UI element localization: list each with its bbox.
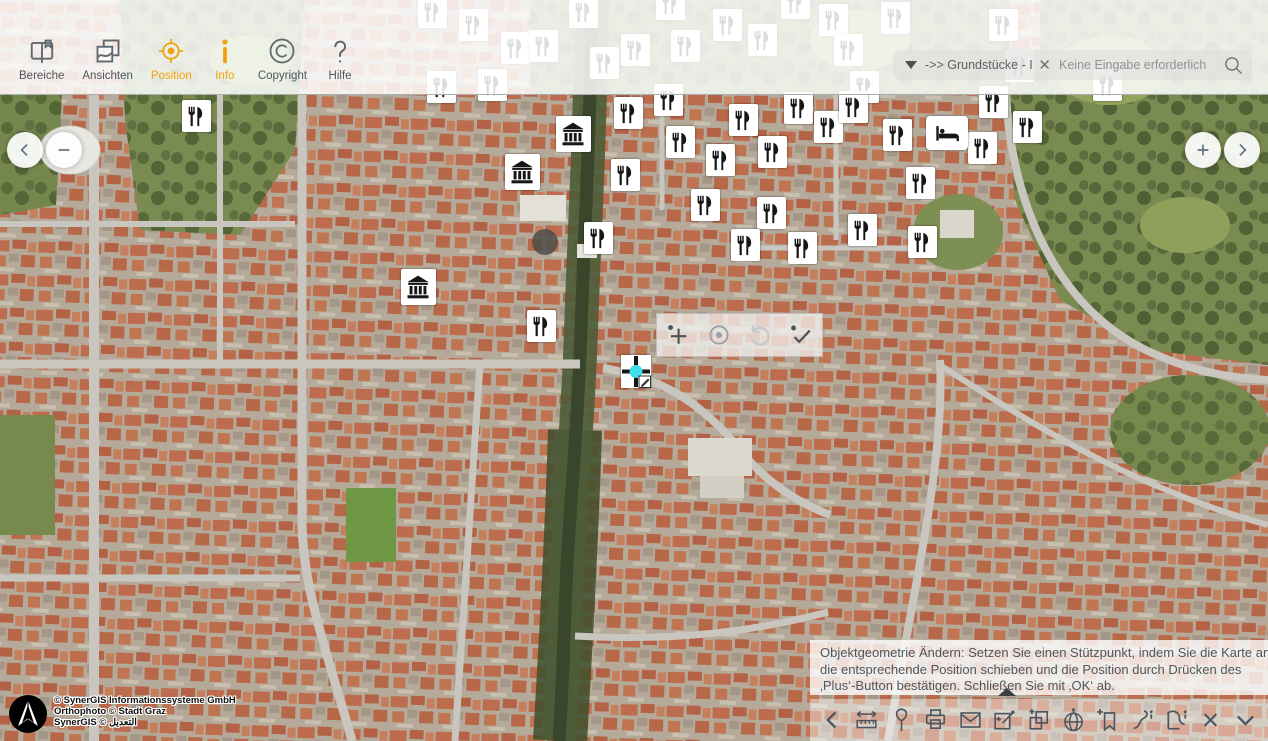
zoom-out-button[interactable]: [46, 132, 82, 168]
restaurant-marker[interactable]: [729, 104, 758, 136]
restaurant-marker[interactable]: [614, 97, 643, 129]
help-icon: [325, 36, 355, 66]
hint-panel: Objektgeometrie Ändern: Setzen Sie einen…: [810, 640, 1268, 695]
search-input[interactable]: [1057, 57, 1222, 73]
copyright-line: SynerGIS © التعديل: [54, 717, 236, 728]
search-category-value[interactable]: ->> Grundstücke - In: [925, 58, 1032, 72]
close-button[interactable]: [1194, 702, 1227, 738]
menu-label: Bereiche: [19, 70, 64, 82]
restaurant-marker[interactable]: [788, 232, 817, 264]
museum-marker[interactable]: [505, 154, 540, 190]
edit-geometry-button[interactable]: [988, 702, 1021, 738]
menu-label: Ansichten: [82, 70, 133, 82]
copy-layers-icon: [1024, 706, 1053, 734]
bookmark-add-icon: [1093, 706, 1122, 734]
pin-button[interactable]: [885, 702, 918, 738]
bookmark-add-button[interactable]: [1091, 702, 1124, 738]
menu-item-ansichten[interactable]: Ansichten: [82, 36, 133, 82]
hint-text: Objektgeometrie Ändern: Setzen Sie einen…: [820, 645, 1258, 662]
undo-icon: [746, 321, 774, 349]
main-menu: Bereiche Ansichten Position Info Copyrig…: [10, 36, 364, 82]
pencil-badge-icon: [639, 376, 651, 388]
restaurant-marker[interactable]: [757, 197, 786, 229]
line-info-button[interactable]: [1126, 702, 1159, 738]
confirm-ok-button[interactable]: [783, 317, 819, 353]
restaurant-marker[interactable]: [968, 132, 997, 164]
pin-icon: [887, 706, 916, 734]
print-icon: [921, 706, 950, 734]
geometry-edit-toolbar: [656, 313, 823, 357]
chevron-left-button[interactable]: [816, 702, 849, 738]
undo-button[interactable]: [742, 317, 778, 353]
north-arrow-logo-icon: [8, 694, 48, 734]
copyright-line: Orthophoto © Stadt Graz: [54, 706, 236, 717]
restaurant-marker[interactable]: [527, 310, 556, 342]
globe-position-icon: [1059, 706, 1088, 734]
menu-item-copyright[interactable]: Copyright: [258, 36, 307, 82]
restaurant-marker[interactable]: [906, 167, 935, 199]
add-point-button[interactable]: [660, 317, 696, 353]
area-info-icon: [1162, 706, 1191, 734]
restaurant-marker[interactable]: [666, 126, 695, 158]
restaurant-marker[interactable]: [908, 226, 937, 258]
confirm-ok-icon: [787, 321, 815, 349]
edit-geometry-icon: [990, 706, 1019, 734]
copyright-line: © SynerGIS Informationssysteme GmbH: [54, 695, 236, 706]
menu-item-info[interactable]: Info: [210, 36, 240, 82]
panel-collapse-handle[interactable]: [998, 688, 1016, 696]
close-icon: [1196, 706, 1225, 734]
menu-label: Info: [215, 70, 234, 82]
attribution: © SynerGIS Informationssysteme GmbH Orth…: [0, 690, 300, 734]
clear-search-button[interactable]: ✕: [1032, 56, 1057, 74]
copy-layers-button[interactable]: [1022, 702, 1055, 738]
measure-icon: [852, 706, 881, 734]
line-info-icon: [1128, 706, 1157, 734]
measure-button[interactable]: [850, 702, 883, 738]
chevron-left-icon: [818, 706, 847, 734]
menu-item-hilfe[interactable]: Hilfe: [325, 36, 355, 82]
pan-right-button[interactable]: [1224, 132, 1260, 168]
hotel-marker[interactable]: [926, 116, 968, 150]
chevron-down-icon: [1231, 706, 1260, 734]
restaurant-marker[interactable]: [584, 222, 613, 254]
map-stage: Bereiche Ansichten Position Info Copyrig…: [0, 0, 1268, 741]
globe-position-button[interactable]: [1057, 702, 1090, 738]
bottom-toolbar: [810, 699, 1268, 741]
edit-vertex-marker[interactable]: [621, 355, 651, 388]
views-layers-icon: [93, 36, 123, 66]
header-toolbar: Bereiche Ansichten Position Info Copyrig…: [0, 0, 1268, 95]
menu-label: Copyright: [258, 70, 307, 82]
menu-label: Hilfe: [329, 70, 352, 82]
add-point-icon: [664, 321, 692, 349]
search-bar: ->> Grundstücke - In ✕: [893, 50, 1252, 80]
area-info-button[interactable]: [1160, 702, 1193, 738]
print-button[interactable]: [919, 702, 952, 738]
center-point-icon: [705, 321, 733, 349]
regions-book-icon: [27, 36, 57, 66]
restaurant-marker[interactable]: [839, 91, 868, 123]
restaurant-marker[interactable]: [1013, 111, 1042, 143]
restaurant-marker[interactable]: [706, 144, 735, 176]
zoom-in-button[interactable]: [1185, 132, 1221, 168]
info-icon: [210, 36, 240, 66]
restaurant-marker[interactable]: [611, 159, 640, 191]
mail-icon: [956, 706, 985, 734]
restaurant-marker[interactable]: [784, 92, 813, 124]
menu-label: Position: [151, 70, 192, 82]
search-icon[interactable]: [1222, 54, 1244, 76]
hint-text: die entsprechende Position schieben und …: [820, 662, 1258, 679]
restaurant-marker[interactable]: [691, 189, 720, 221]
hint-text: ‚Plus‘-Button bestätigen. Schließen Sie …: [820, 678, 1258, 695]
center-point-button[interactable]: [701, 317, 737, 353]
chevron-down-button[interactable]: [1229, 702, 1262, 738]
menu-item-position[interactable]: Position: [151, 36, 192, 82]
museum-marker[interactable]: [556, 116, 591, 152]
restaurant-marker[interactable]: [883, 119, 912, 151]
museum-marker[interactable]: [401, 269, 436, 305]
restaurant-marker[interactable]: [182, 100, 211, 132]
pan-left-button[interactable]: [7, 132, 43, 168]
restaurant-marker[interactable]: [758, 136, 787, 168]
position-target-icon: [156, 36, 186, 66]
restaurant-marker[interactable]: [731, 229, 760, 261]
restaurant-marker[interactable]: [848, 214, 877, 246]
search-category-dropdown-icon[interactable]: [905, 61, 917, 69]
mail-button[interactable]: [954, 702, 987, 738]
menu-item-bereiche[interactable]: Bereiche: [19, 36, 64, 82]
copyright-icon: [267, 36, 297, 66]
